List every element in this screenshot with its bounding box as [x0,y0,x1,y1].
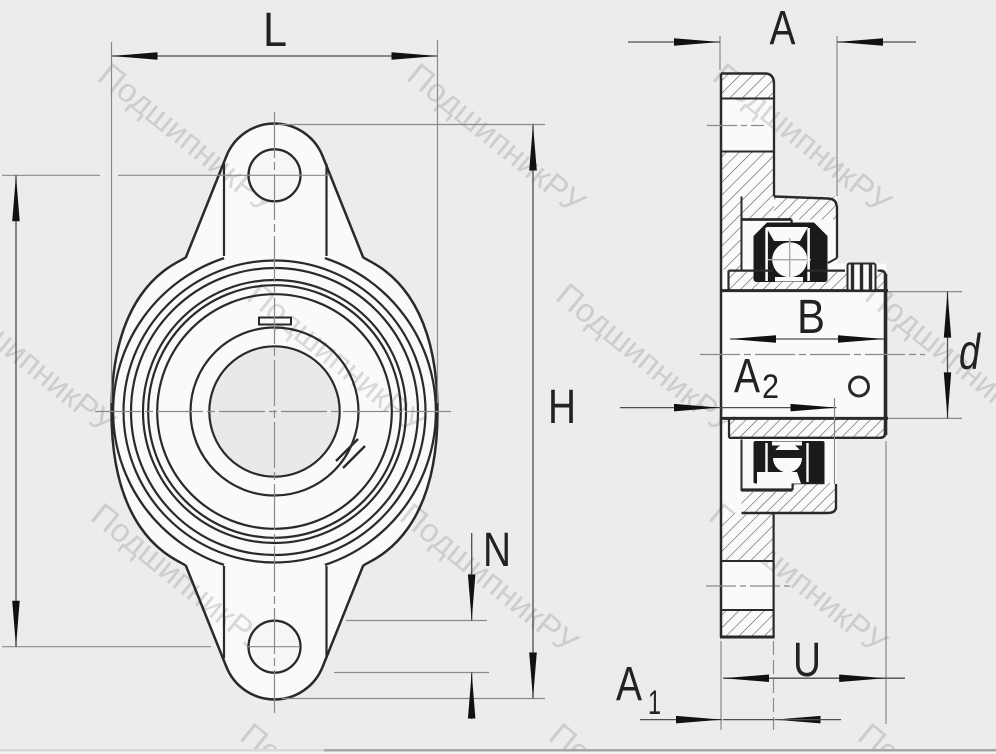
svg-text:A: A [770,2,796,55]
svg-text:U: U [793,634,821,687]
svg-text:H: H [548,381,576,434]
svg-text:1: 1 [648,684,661,722]
svg-text:L: L [263,4,287,57]
svg-text:d: d [959,324,982,380]
svg-text:A: A [616,658,642,711]
svg-text:B: B [797,291,825,344]
svg-text:N: N [483,524,511,577]
svg-text:A: A [734,350,760,403]
svg-text:2: 2 [762,368,779,406]
